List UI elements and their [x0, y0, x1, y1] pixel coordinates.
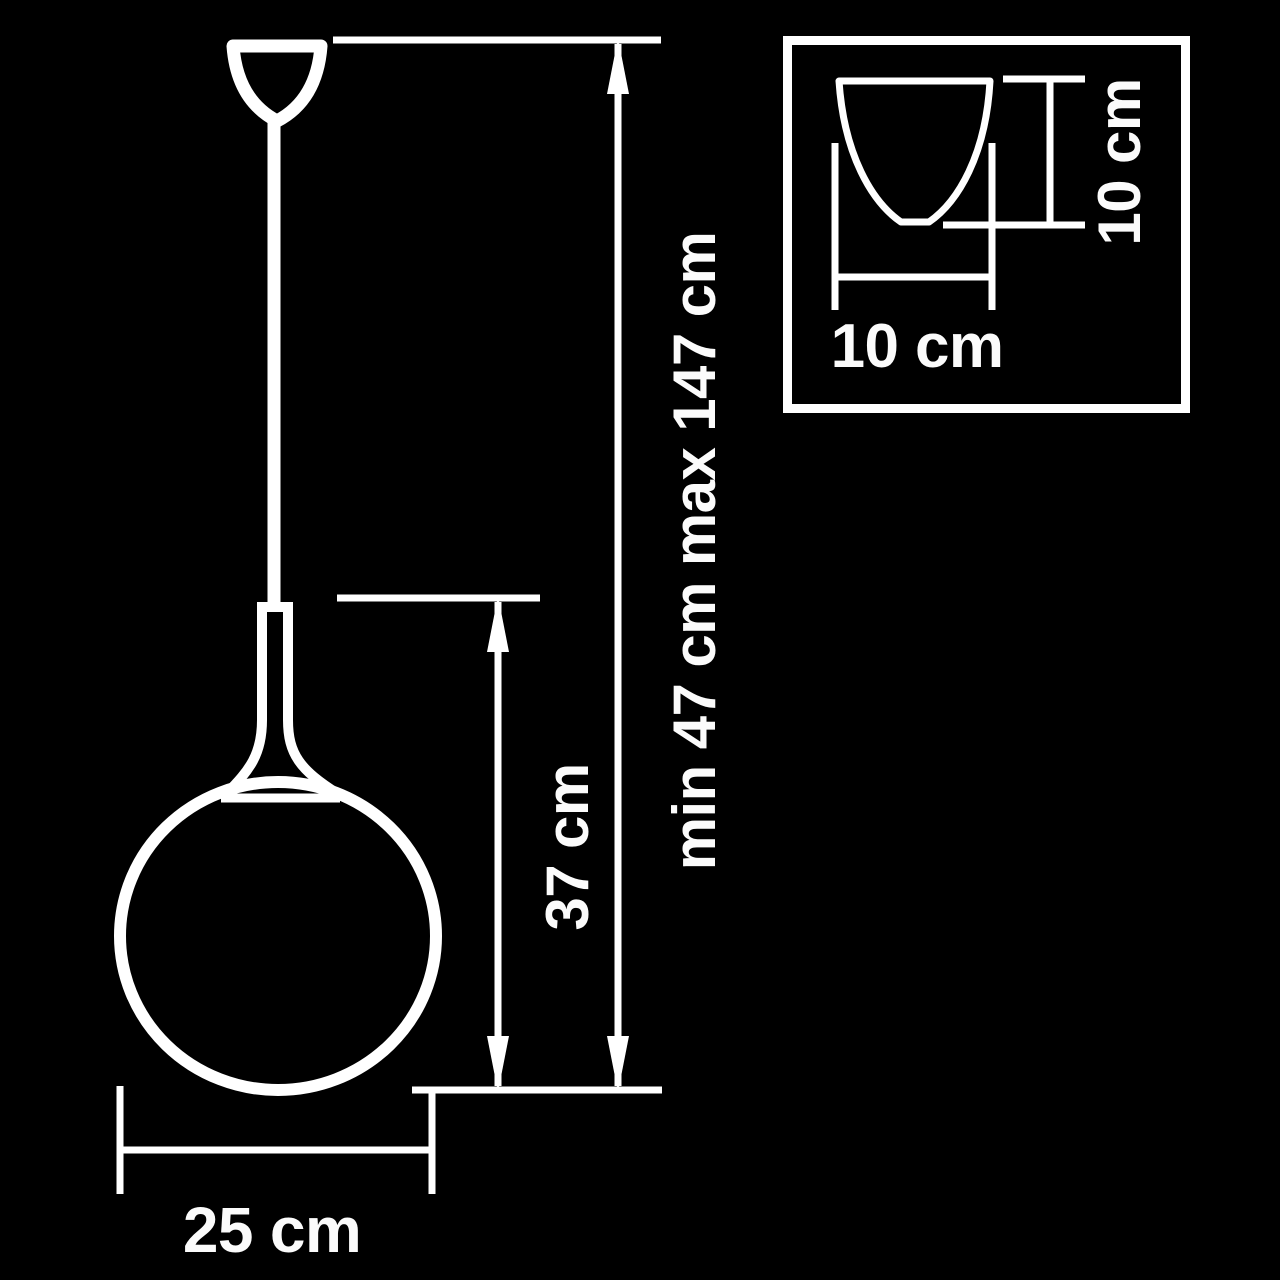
height-range-label: min 47 cm max 147 cm	[661, 232, 728, 870]
lamp-dimension-diagram: min 47 cm max 147 cm 37 cm 25 cm	[0, 0, 1280, 1280]
canopy-height-label: 10 cm	[1086, 78, 1153, 245]
canopy-width-label: 10 cm	[831, 312, 1004, 381]
canopy-inset: 10 cm 10 cm	[788, 41, 1186, 409]
canopy-detail-drawing	[839, 81, 990, 222]
arrow-down-icon	[487, 1036, 509, 1092]
pendant-lamp-drawing	[120, 46, 436, 1090]
height-dimension: min 47 cm max 147 cm	[333, 38, 728, 1092]
shade-neck-left	[226, 607, 262, 794]
shade-globe	[120, 782, 436, 1090]
diameter-dimension: 25 cm	[120, 1086, 432, 1266]
ceiling-canopy	[233, 46, 321, 121]
arrow-up-icon	[607, 38, 629, 94]
arrow-down-icon	[607, 1036, 629, 1092]
shade-diameter-label: 25 cm	[183, 1194, 361, 1266]
arrow-up-icon	[487, 596, 509, 652]
shade-neck-right	[288, 607, 338, 794]
shade-height-label: 37 cm	[534, 763, 601, 930]
shade-height-dimension: 37 cm	[337, 596, 601, 1092]
diagram-svg: min 47 cm max 147 cm 37 cm 25 cm	[0, 0, 1280, 1280]
